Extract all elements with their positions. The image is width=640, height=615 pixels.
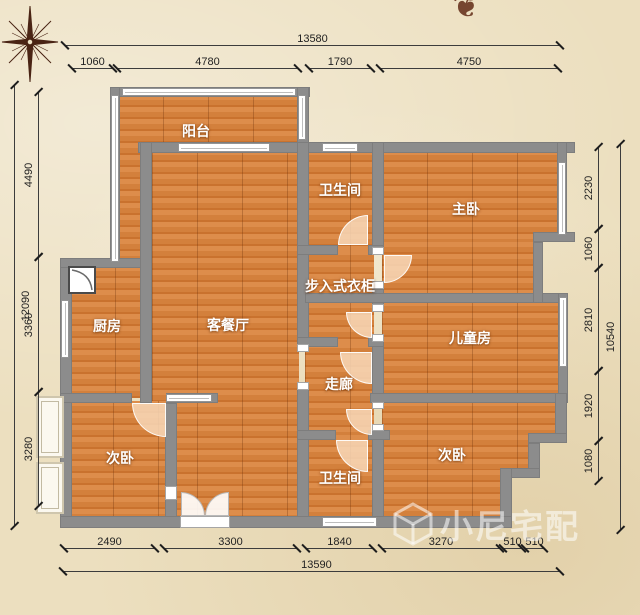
wall-central-right-a: [372, 142, 384, 247]
window-balcony-right: [298, 95, 306, 140]
wall-notch-v: [533, 242, 543, 303]
window-kitchen-left: [61, 300, 69, 358]
floor-master-a: [382, 150, 559, 242]
window-bottom-bath: [322, 517, 377, 527]
wall-kids-bottom: [370, 393, 568, 403]
cube-logo-icon: [392, 501, 434, 547]
dim-left-overall: 12090: [14, 85, 15, 526]
dim-right-seg-0: 2230: [598, 147, 599, 229]
dim-bottom-seg-0: 2490: [64, 548, 155, 549]
ornament-flourish: ❦: [452, 0, 481, 26]
room-label-corridor: 走廊: [325, 374, 353, 394]
dim-bottom-seg-1: 3300: [164, 548, 297, 549]
dim-top-overall: 13580: [65, 45, 560, 46]
room-label-master-bedroom: 主卧: [452, 199, 480, 219]
dim-right-seg-2: 2810: [598, 268, 599, 371]
dim-right-seg-3: 1920: [598, 371, 599, 441]
dim-bottom-seg-5: 510: [525, 548, 544, 549]
entrance-threshold: [180, 516, 230, 528]
room-label-bathroom-top: 卫生间: [319, 180, 361, 200]
compass-rose-icon: [1, 2, 59, 86]
watermark-text: 小尼宅配: [440, 500, 580, 548]
window-master-right: [558, 162, 566, 235]
room-label-bathroom-bottom: 卫生间: [319, 468, 361, 488]
floor-balcony-strip: [118, 95, 140, 265]
wall-kitchen-right: [140, 142, 152, 403]
door-jamb: [372, 247, 384, 255]
room-label-living-dining: 客餐厅: [207, 315, 249, 335]
room-label-kitchen: 厨房: [93, 316, 121, 336]
dim-right-seg-1: 1060: [598, 229, 599, 268]
dim-left-seg-0: 4490: [38, 92, 39, 257]
door-jamb: [297, 344, 309, 352]
dim-bottom-seg-2: 1840: [306, 548, 373, 549]
wall-br-step-1: [528, 433, 567, 443]
floor-bedroom-right-a: [382, 401, 557, 435]
door-jamb: [372, 402, 384, 409]
room-label-balcony: 阳台: [182, 121, 210, 141]
watermark: 小尼宅配: [392, 500, 580, 548]
dim-bottom-seg-4: 510: [503, 548, 522, 549]
floor-kids: [382, 301, 560, 395]
dim-top-seg-0: 1060: [72, 68, 113, 69]
dim-right-seg-4: 1080: [598, 441, 599, 481]
wall-living-right-b: [297, 384, 309, 518]
door-jamb: [297, 382, 309, 390]
room-label-bedroom-right: 次卧: [438, 445, 466, 465]
dim-top-seg-3: 4750: [380, 68, 558, 69]
room-label-kids-room: 儿童房: [449, 328, 491, 348]
window-bathroom-top: [322, 143, 358, 152]
room-label-walk-in-closet: 步入式衣柜: [305, 276, 375, 296]
wall-central-right-d: [372, 431, 384, 518]
kitchen-corner-fixture-icon: [68, 266, 96, 294]
room-label-bedroom-left: 次卧: [106, 448, 134, 468]
bay-window-upper: [36, 396, 64, 458]
window-pass-through: [166, 394, 212, 402]
dim-bottom-overall: 13590: [63, 571, 560, 572]
dim-left-seg-2: 3280: [38, 392, 39, 506]
wall-kitchen-bottom-a: [60, 393, 132, 403]
window-kids-right: [559, 297, 567, 367]
wall-bedroomleft-right: [165, 403, 177, 518]
dim-bottom-seg-3: 3270: [382, 548, 500, 549]
wall-corridor-bottom-a: [297, 430, 336, 440]
door-jamb: [372, 304, 384, 312]
window-balcony-left: [111, 95, 119, 262]
wall-notch-h: [533, 232, 575, 242]
dim-left-seg-1: 3360: [38, 257, 39, 392]
door-jamb: [165, 486, 177, 500]
door-jamb: [372, 424, 384, 431]
dim-right-overall: 10540: [620, 144, 621, 530]
door-jamb: [372, 334, 384, 342]
bay-window-lower: [36, 462, 64, 514]
window-living-divider: [178, 143, 270, 152]
wall-bath1-bottom-a: [297, 245, 338, 255]
dim-top-seg-1: 4780: [117, 68, 298, 69]
floor-plan-canvas: ❦: [0, 0, 640, 615]
window-balcony-top: [122, 88, 296, 96]
dim-top-seg-2: 1790: [309, 68, 371, 69]
